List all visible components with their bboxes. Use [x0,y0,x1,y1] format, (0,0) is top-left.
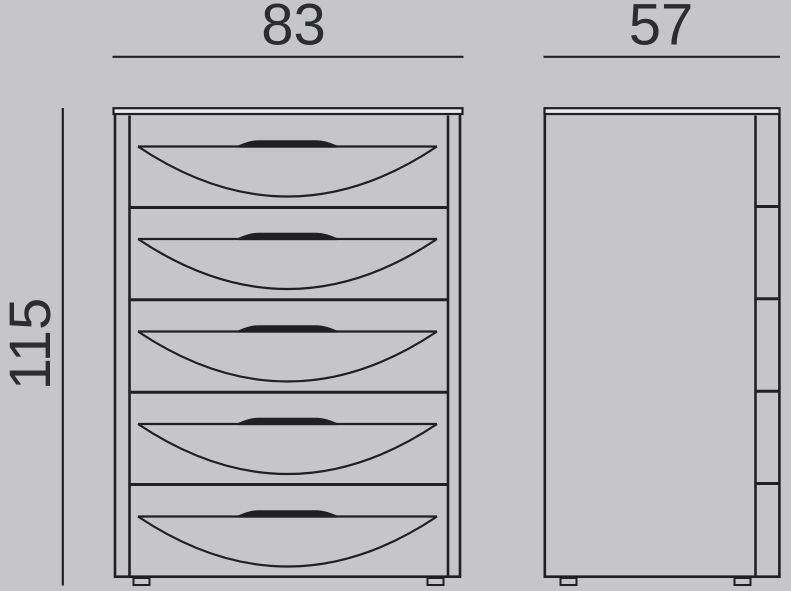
svg-text:115: 115 [0,298,63,390]
svg-text:57: 57 [629,0,694,58]
svg-text:83: 83 [261,0,326,58]
